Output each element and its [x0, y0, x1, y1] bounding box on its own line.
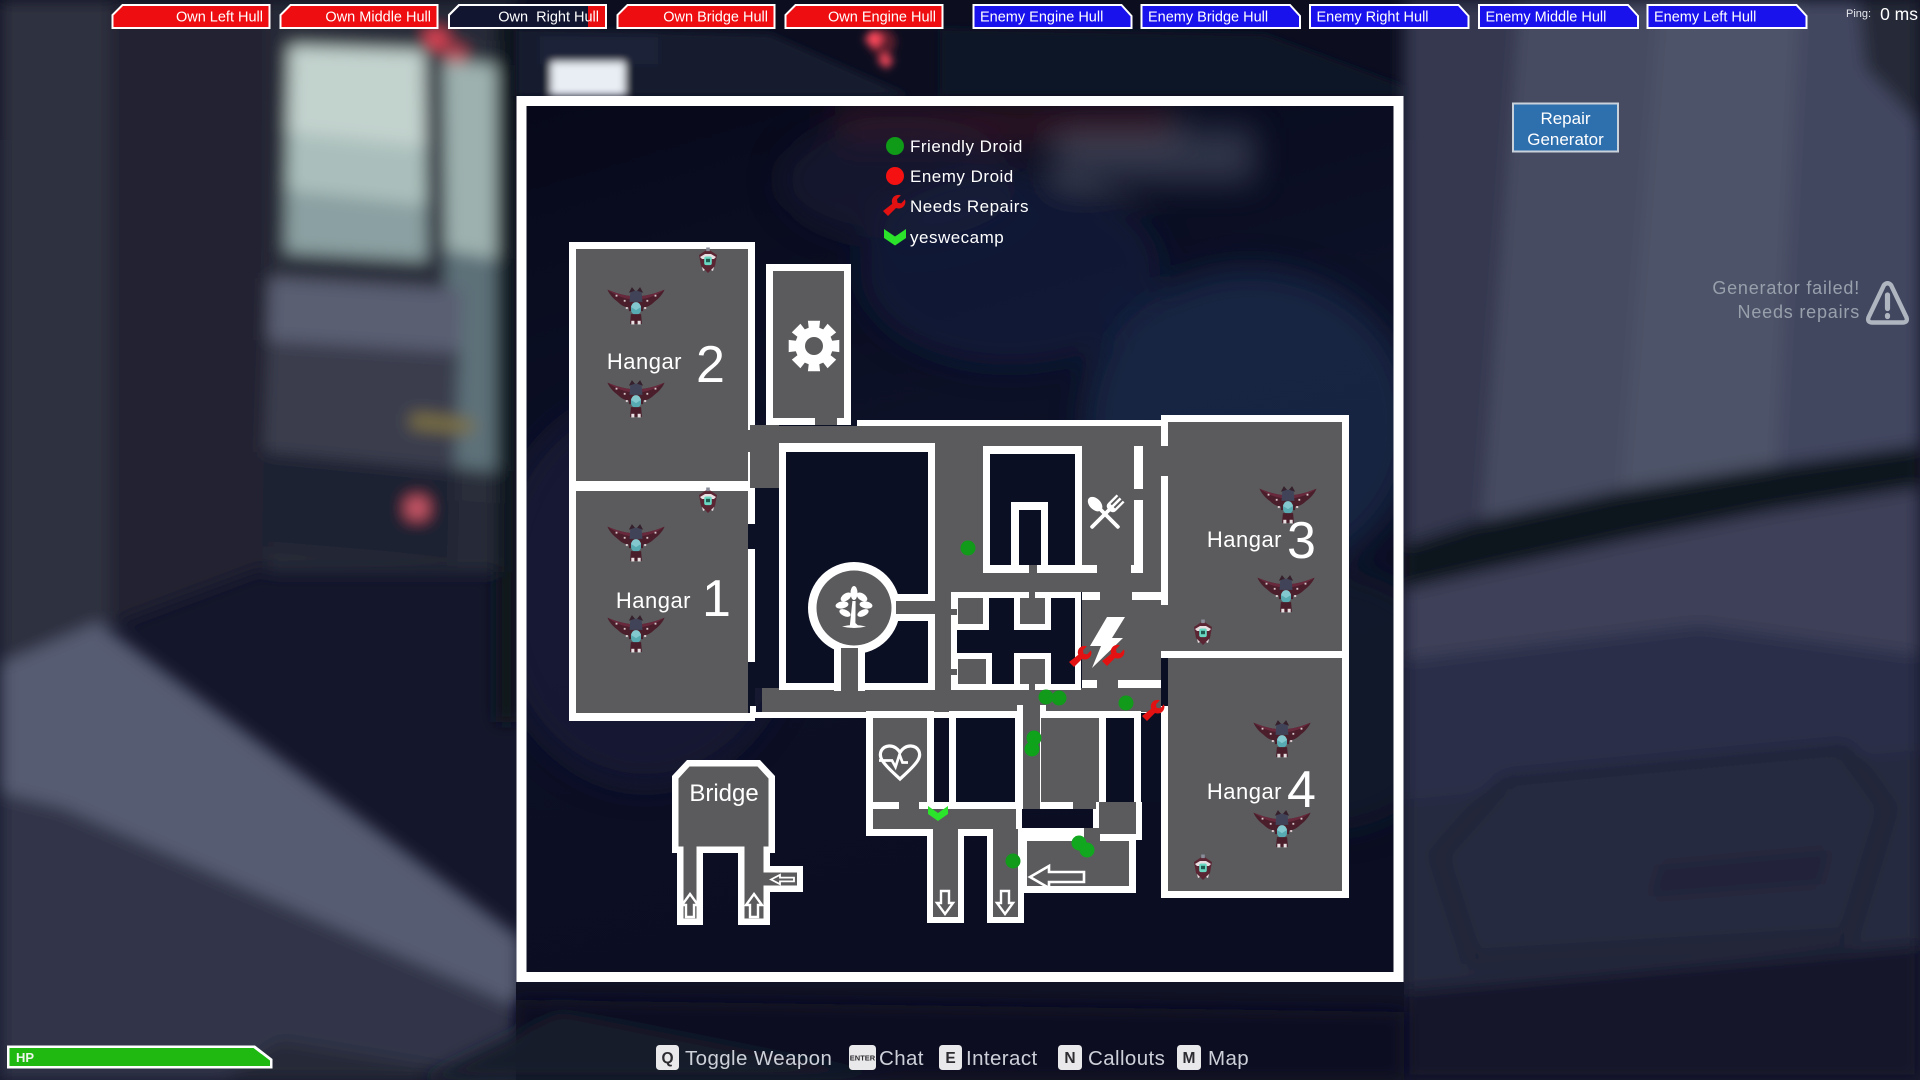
- svg-text:N: N: [1064, 1050, 1075, 1067]
- svg-text:M: M: [1183, 1050, 1196, 1067]
- svg-text:Repair: Repair: [1540, 109, 1590, 128]
- svg-text:Bridge: Bridge: [689, 780, 758, 807]
- svg-text:Hangar: Hangar: [1207, 527, 1282, 552]
- svg-text:Hangar: Hangar: [1207, 779, 1282, 804]
- svg-text:Generator failed!: Generator failed!: [1712, 278, 1860, 298]
- svg-text:Map: Map: [1208, 1047, 1249, 1070]
- svg-text:HP: HP: [16, 1050, 34, 1065]
- svg-text:1: 1: [702, 570, 731, 628]
- svg-text:Own Engine Hull: Own Engine Hull: [828, 10, 936, 26]
- svg-text:Needs Repairs: Needs Repairs: [910, 197, 1029, 216]
- svg-text:0 ms: 0 ms: [1880, 4, 1918, 24]
- svg-text:Enemy Right Hull: Enemy Right Hull: [1317, 10, 1429, 26]
- svg-text:Own Bridge Hull: Own Bridge Hull: [663, 10, 768, 26]
- svg-text:Ping:: Ping:: [1846, 8, 1871, 20]
- svg-text:Hangar: Hangar: [607, 349, 682, 374]
- svg-text:E: E: [945, 1050, 955, 1067]
- svg-text:Own Middle Hull: Own Middle Hull: [325, 10, 431, 26]
- svg-text:Callouts: Callouts: [1088, 1047, 1165, 1070]
- svg-text:Enemy Left Hull: Enemy Left Hull: [1654, 10, 1756, 26]
- svg-text:Interact: Interact: [966, 1047, 1038, 1070]
- svg-text:yeswecamp: yeswecamp: [910, 228, 1004, 247]
- svg-text:Own Left Hull: Own Left Hull: [176, 10, 263, 26]
- svg-text:Enemy Middle Hull: Enemy Middle Hull: [1486, 10, 1607, 26]
- svg-text:3: 3: [1287, 512, 1316, 570]
- svg-text:Generator: Generator: [1527, 130, 1604, 149]
- svg-text:Enemy Droid: Enemy Droid: [910, 167, 1014, 186]
- svg-text:Q: Q: [661, 1050, 673, 1067]
- svg-text:Enemy Engine Hull: Enemy Engine Hull: [980, 10, 1103, 26]
- svg-text:Enemy Bridge Hull: Enemy Bridge Hull: [1148, 10, 1268, 26]
- svg-text:ENTER: ENTER: [850, 1054, 876, 1063]
- svg-text:2: 2: [696, 336, 725, 394]
- svg-text:Needs repairs: Needs repairs: [1738, 302, 1860, 322]
- svg-text:Hangar: Hangar: [616, 588, 691, 613]
- svg-text:Chat: Chat: [879, 1047, 924, 1070]
- svg-text:Own Right Hull: Own Right Hull: [498, 10, 599, 26]
- svg-text:Toggle Weapon: Toggle Weapon: [685, 1047, 832, 1070]
- svg-text:Friendly Droid: Friendly Droid: [910, 137, 1023, 156]
- svg-text:4: 4: [1287, 761, 1316, 819]
